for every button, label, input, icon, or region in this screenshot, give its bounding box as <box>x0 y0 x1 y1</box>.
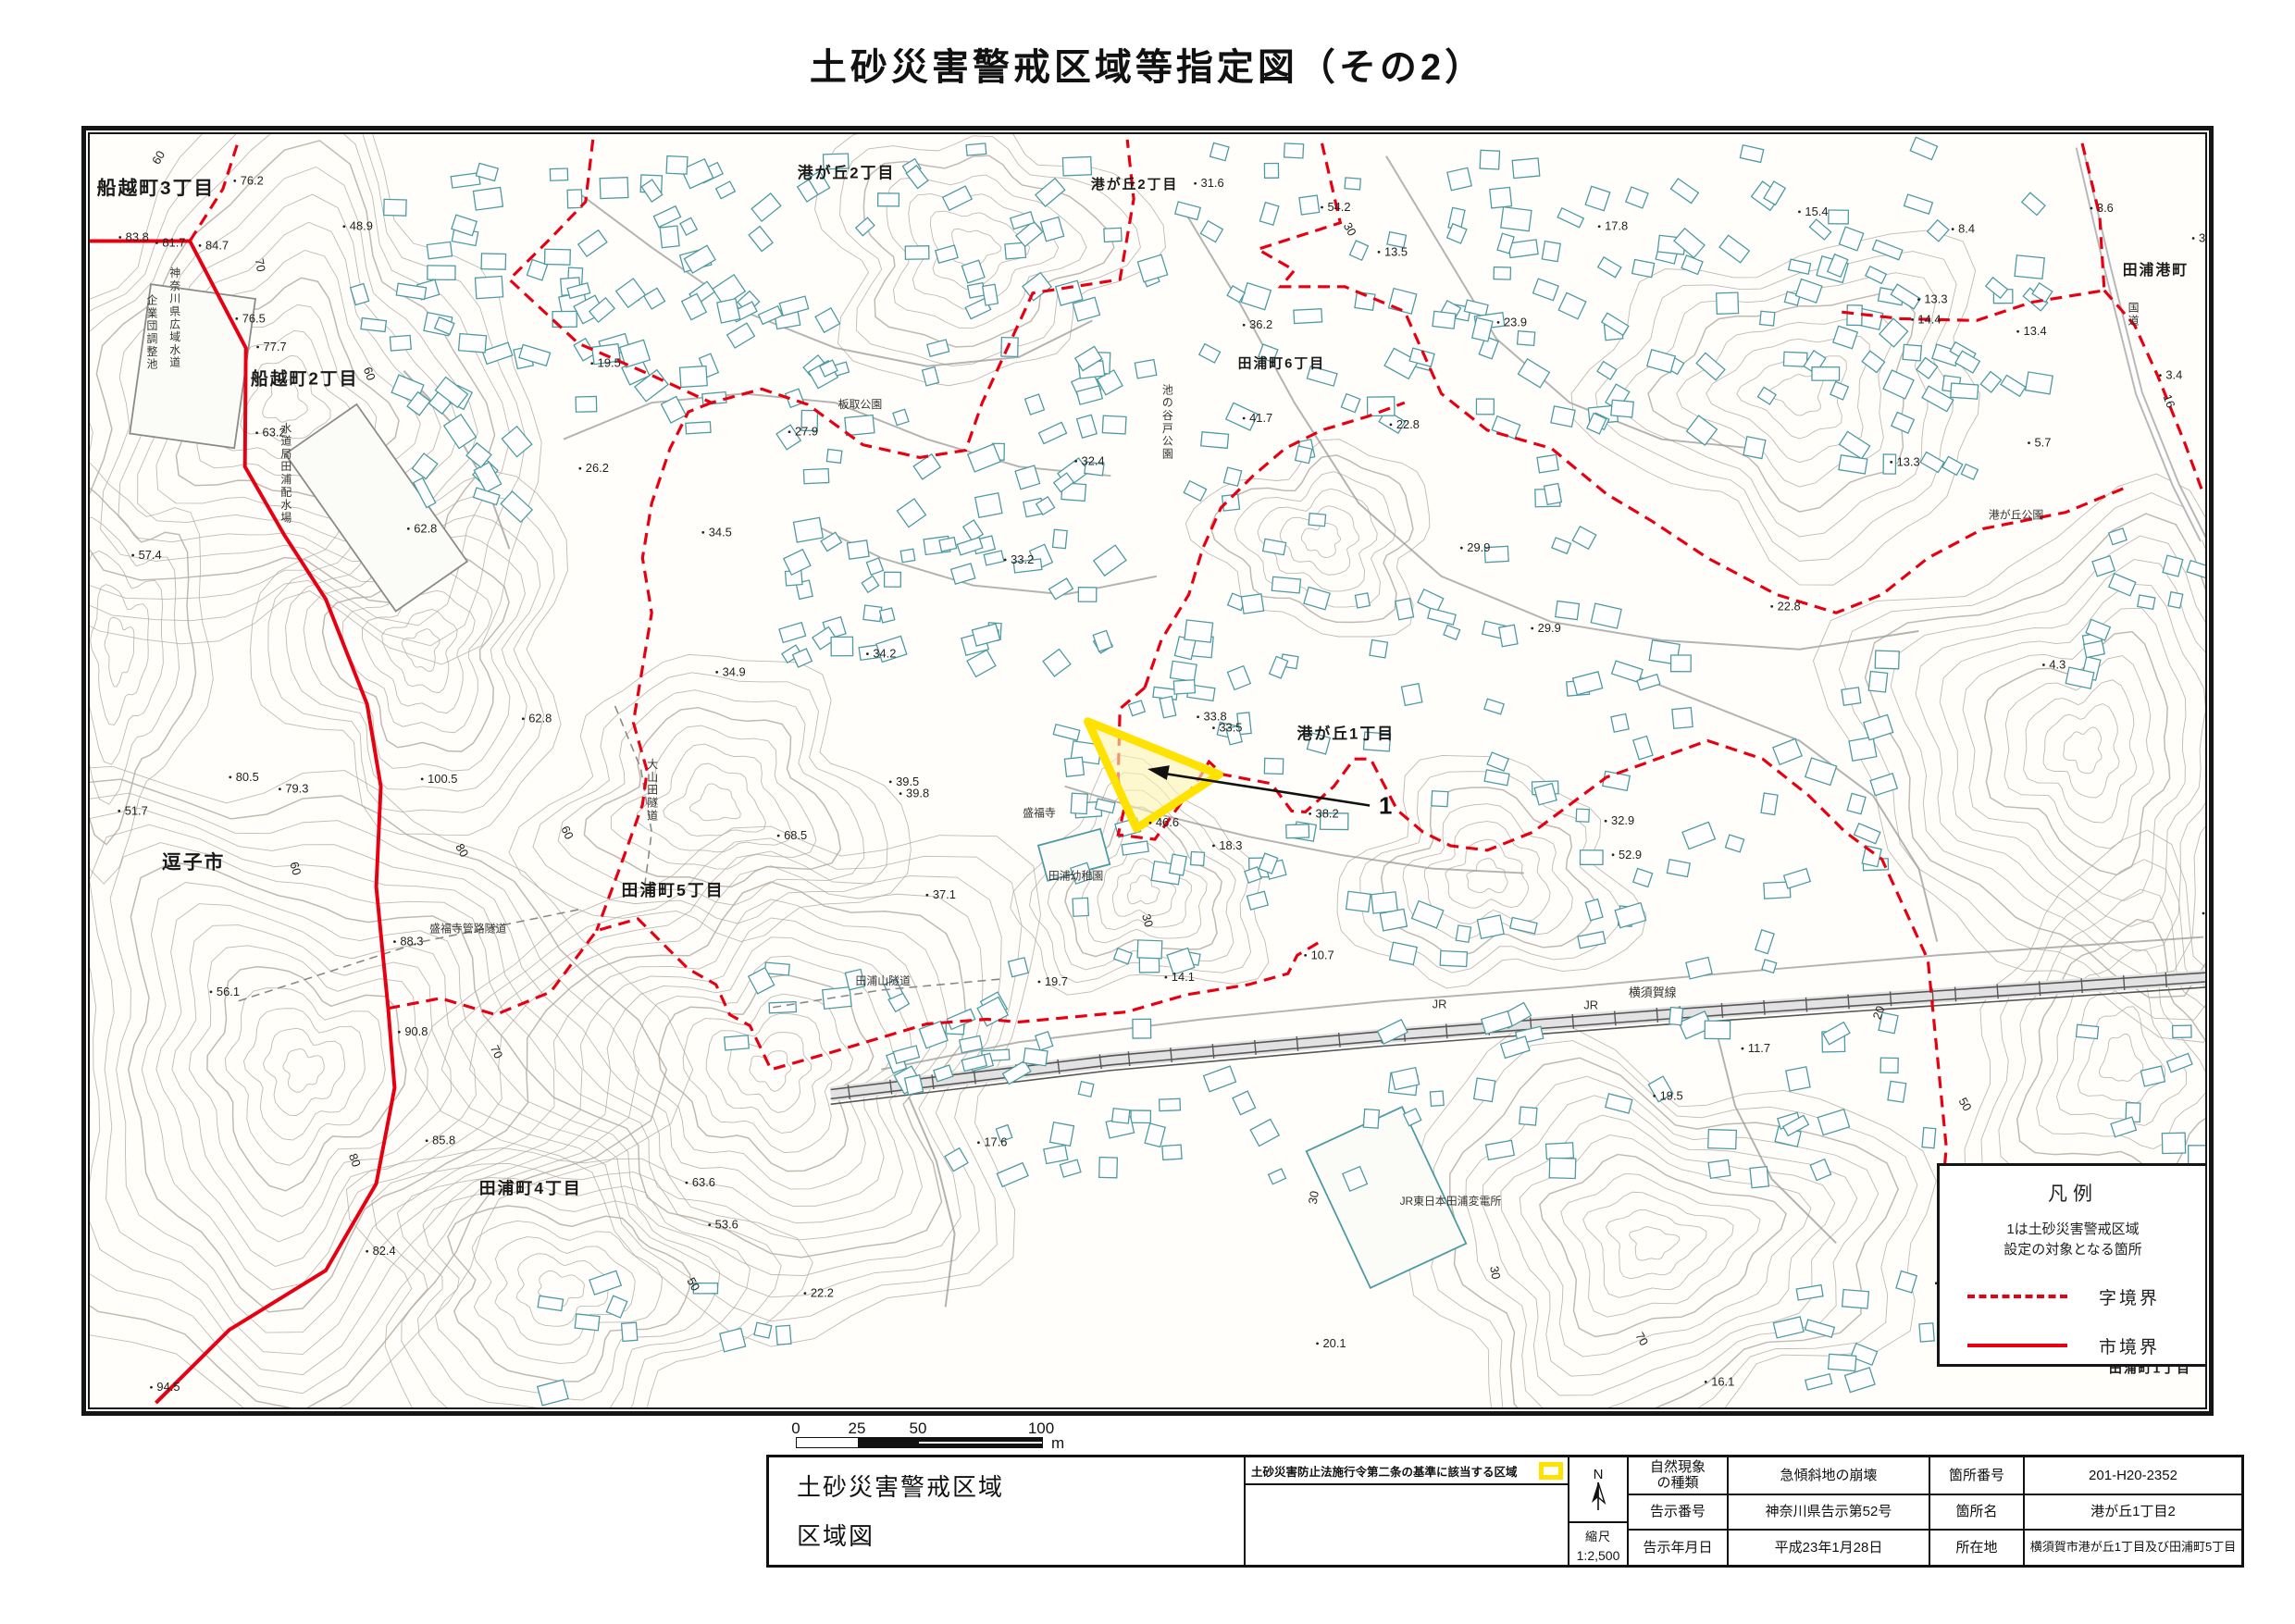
spot-elevation: 19.5 <box>1660 1088 1683 1102</box>
spot-elevation: 34.5 <box>709 525 732 539</box>
map-frame: 1船越町3丁目船越町2丁目港が丘2丁目港が丘2丁目田浦港町田浦町6丁目港が丘1丁… <box>81 126 2214 1416</box>
spot-elevation: 56.1 <box>217 985 240 998</box>
site-name-label: 箇所名 <box>1929 1494 2023 1530</box>
district-label: 田浦町4丁目 <box>479 1178 582 1197</box>
facility-label: 横須賀線 <box>1629 986 1677 999</box>
notice-date-label: 告示年月日 <box>1629 1529 1727 1565</box>
legend-shi-label: 市境界 <box>2099 1333 2160 1358</box>
facility-label: 池の谷戸公園 <box>1162 383 1173 460</box>
district-label: 田浦港町 <box>2123 261 2189 279</box>
spot-elevation: 33.2 <box>1011 552 1034 566</box>
facility-label: 田浦幼稚園 <box>1048 869 1103 882</box>
legend-note: 1は土砂災害警戒区域 設定の対象となる箇所 <box>1958 1220 2188 1260</box>
spot-elevation: 34.9 <box>723 664 746 678</box>
spot-elevation: 19.7 <box>1045 974 1068 988</box>
spot-elevation: 68.5 <box>784 828 807 842</box>
spot-elevation: 39.8 <box>906 787 929 800</box>
svg-text:N: N <box>1594 1467 1604 1482</box>
spot-elevation: 23.9 <box>1504 315 1527 329</box>
spot-elevation: 83.8 <box>126 230 149 244</box>
spot-elevation: 38.2 <box>1316 806 1339 820</box>
attributes-grid: 自然現象 の種類 急傾斜地の崩壊 箇所番号 201-H20-2352 告示番号 … <box>1629 1457 2241 1565</box>
district-label: 港が丘2丁目 <box>1091 176 1179 192</box>
district-label: 船越町2丁目 <box>251 368 359 389</box>
spot-elevation: 10.7 <box>1311 948 1334 961</box>
facility-label: JR <box>1583 998 1598 1012</box>
facility-label: JR東日本田浦変電所 <box>1400 1195 1502 1208</box>
spot-elevation: 29.9 <box>1467 540 1490 554</box>
spot-elevation: 80.5 <box>236 770 259 784</box>
north-arrow: N <box>1569 1457 1627 1521</box>
spot-elevation: 63.6 <box>692 1175 715 1189</box>
spot-elevation: 90.8 <box>404 1024 428 1038</box>
spot-elevation: 36.2 <box>1249 317 1272 331</box>
spot-elevation: 29.9 <box>1538 621 1561 635</box>
scale-tick: 25 <box>849 1419 866 1438</box>
district-label: 港が丘1丁目 <box>1297 724 1396 742</box>
spot-elevation: 13.3 <box>1924 292 1947 306</box>
page-title: 土砂災害警戒区域等指定図（その2） <box>0 37 2295 91</box>
spot-elevation: 60 <box>287 861 304 877</box>
spot-elevation: 13.5 <box>1384 244 1408 258</box>
spot-elevation: 94.5 <box>156 1380 180 1394</box>
scale-seg <box>919 1442 1042 1444</box>
buildings <box>351 137 2205 1406</box>
spot-elevation: 19.5 <box>598 356 621 370</box>
law-note-cell: 土砂災害防止法施行令第二条の基準に該当する区域 <box>1246 1457 1569 1565</box>
spot-elevation: 8.4 <box>1958 222 1975 236</box>
scale-tick: 50 <box>910 1419 927 1438</box>
facility-label: 神奈川県広域水道 <box>169 267 180 369</box>
spot-elevation: 46.6 <box>1156 815 1179 829</box>
spot-elevation: 34.2 <box>873 647 896 661</box>
facility-label: 国道 <box>2128 302 2140 328</box>
map-type-cell: 土砂災害警戒区域 区域図 <box>769 1457 1246 1565</box>
spot-elevation: 33.5 <box>1219 721 1242 735</box>
scale-unit: m <box>1051 1434 1064 1453</box>
district-label: 船越町3丁目 <box>97 177 216 199</box>
spot-elevation: 80 <box>346 1151 364 1169</box>
spot-elevation: 3.6 <box>2097 201 2114 215</box>
spot-elevation: 3.4 <box>2199 231 2205 245</box>
spot-elevation: 85.8 <box>432 1134 455 1147</box>
facility-label: JR <box>1433 998 1447 1011</box>
legend-aza-label: 字境界 <box>2099 1284 2160 1309</box>
map-legend: 凡例 1は土砂災害警戒区域 設定の対象となる箇所 字境界 市境界 <box>1937 1163 2207 1367</box>
scale-value: 1:2,500 <box>1569 1548 1627 1563</box>
spot-elevation: 88.3 <box>400 935 423 948</box>
spot-elevation: 84.7 <box>205 238 229 252</box>
scale-bar-graphic <box>796 1437 1043 1448</box>
spot-elevation: 41.7 <box>1249 411 1272 425</box>
spot-elevation: 48.9 <box>350 219 373 233</box>
hazard-map-sheet: 土砂災害警戒区域等指定図（その2） 1船越町3丁目船越町2丁目港が丘2丁目港が丘… <box>0 0 2295 1624</box>
scale-seg <box>797 1438 858 1447</box>
scale-ticks: 02550100 <box>785 1419 1081 1437</box>
spot-elevation: 70 <box>253 257 268 273</box>
spot-elevation: 32.4 <box>1082 453 1105 467</box>
facility-label: 企業団調整池 <box>147 294 158 371</box>
site-no-value: 201-H20-2352 <box>2023 1457 2241 1494</box>
facility-label: 板取公園 <box>838 398 883 411</box>
tunnel-lines <box>239 706 1001 1008</box>
legend-title: 凡例 <box>1958 1179 2188 1207</box>
spot-elevation: 26.2 <box>586 461 609 475</box>
designation-number: 1 <box>1379 793 1392 819</box>
location-value: 横須賀市港が丘1丁目及び田浦町5丁目 <box>2023 1529 2241 1565</box>
nature-value: 急傾斜地の崩壊 <box>1727 1457 1929 1494</box>
facility-label: 田浦山隧道 <box>856 974 912 987</box>
spot-elevation: 13.4 <box>2024 324 2047 338</box>
spot-elevation: 4.3 <box>2049 657 2065 671</box>
spot-elevation: 76.2 <box>241 173 264 187</box>
north-arrow-icon: N <box>1584 1466 1612 1514</box>
district-label: 田浦町6丁目 <box>1238 355 1326 372</box>
spot-elevation: 27.9 <box>795 425 818 439</box>
spot-elevation: 13.3 <box>1897 454 1920 468</box>
facility-label: 大山田隧道 <box>647 758 658 822</box>
spot-elevation: 60 <box>361 366 378 383</box>
map-type-line1: 土砂災害警戒区域 <box>797 1469 1244 1503</box>
legend-row-shi: 市境界 <box>1958 1333 2188 1358</box>
spot-elevation: 30 <box>1487 1265 1503 1281</box>
spot-elevation: 70 <box>488 1043 506 1060</box>
site-name-value: 港が丘1丁目2 <box>2023 1494 2241 1530</box>
spot-elevation: 77.7 <box>264 340 287 353</box>
spot-elevation: 16.1 <box>1711 1374 1734 1388</box>
spot-elevation: 51.7 <box>125 803 148 817</box>
spot-elevation: 11.7 <box>1748 1041 1770 1055</box>
spot-elevation: 50 <box>1955 1095 1974 1113</box>
spot-elevation: 37.1 <box>933 887 956 901</box>
spot-elevation: 17.8 <box>1605 219 1628 233</box>
legend-row-aza: 字境界 <box>1958 1284 2188 1309</box>
spot-elevation: 22.2 <box>811 1286 834 1300</box>
spot-elevation: 5.7 <box>2034 436 2051 450</box>
district-label: 港が丘2丁目 <box>798 163 896 181</box>
district-label: 逗子市 <box>162 851 225 874</box>
map-type-line2: 区域図 <box>797 1518 1244 1552</box>
spot-elevation: 30 <box>1341 220 1359 239</box>
aza-boundary <box>597 403 712 931</box>
spot-elevation: 62.8 <box>414 521 437 535</box>
spot-elevation: 30 <box>1139 912 1156 929</box>
spot-elevation: 100.5 <box>428 772 457 786</box>
map-canvas: 1船越町3丁目船越町2丁目港が丘2丁目港が丘2丁目田浦港町田浦町6丁目港が丘1丁… <box>88 132 2207 1409</box>
spot-elevation: 60 <box>558 824 577 841</box>
scale-tick: 0 <box>791 1419 800 1438</box>
location-label: 所在地 <box>1929 1529 2023 1565</box>
district-label: 田浦町5丁目 <box>622 880 725 899</box>
info-table: 土砂災害警戒区域 区域図 土砂災害防止法施行令第二条の基準に該当する区域 N 縮… <box>766 1455 2244 1568</box>
spot-elevation: 17.6 <box>984 1135 1007 1149</box>
spot-elevation: 18.3 <box>1219 838 1242 852</box>
spot-elevation: 62.8 <box>528 712 552 725</box>
notice-no-value: 神奈川県告示第52号 <box>1727 1494 1929 1530</box>
facility-label: 盛福寺管路隧道 <box>429 923 506 936</box>
facility-label: 港が丘公園 <box>1989 509 2043 522</box>
spot-elevation: 52.9 <box>1619 848 1642 862</box>
spot-elevation: 22.8 <box>1396 417 1420 431</box>
topographic-map: 1船越町3丁目船越町2丁目港が丘2丁目港が丘2丁目田浦港町田浦町6丁目港が丘1丁… <box>90 134 2205 1407</box>
law-note: 土砂災害防止法施行令第二条の基準に該当する区域 <box>1251 1462 1518 1480</box>
scale-label: 縮尺 <box>1569 1527 1627 1544</box>
notice-no-label: 告示番号 <box>1629 1494 1727 1530</box>
site-no-label: 箇所番号 <box>1929 1457 2023 1494</box>
facility-label: 盛福寺 <box>1023 806 1056 819</box>
north-scale-cell: N 縮尺 1:2,500 <box>1569 1457 1629 1565</box>
spot-elevation: 60 <box>149 148 167 167</box>
spot-elevation: 3.4 <box>2165 368 2182 382</box>
spot-elevation: 15.4 <box>1805 205 1828 218</box>
spot-elevation: 14.1 <box>1172 970 1195 984</box>
designated-area-swatch <box>1539 1462 1563 1480</box>
spot-elevation: 79.3 <box>285 782 308 796</box>
spot-elevation: 32.9 <box>1611 813 1634 827</box>
spot-elevation: 20.1 <box>1323 1336 1346 1350</box>
spot-elevation: 53.6 <box>715 1218 738 1232</box>
spot-elevation: 30 <box>1306 1190 1321 1206</box>
spot-elevation: 57.4 <box>139 548 162 562</box>
spot-elevation: 81.7 <box>162 235 185 249</box>
nature-label: 自然現象 の種類 <box>1629 1457 1727 1494</box>
scale-seg <box>858 1438 919 1447</box>
spot-elevation: 16 <box>2161 392 2178 410</box>
spot-elevation: 70 <box>1632 1330 1651 1348</box>
spot-elevation: 54.2 <box>1327 200 1350 214</box>
spot-elevation: 76.5 <box>242 311 266 325</box>
dashed-line-sample <box>1967 1295 2067 1298</box>
scale-tick: 100 <box>1028 1419 1054 1438</box>
spot-elevation: 82.4 <box>373 1244 396 1258</box>
notice-date-value: 平成23年1月28日 <box>1727 1529 1929 1565</box>
spot-elevation: 31.6 <box>1201 176 1224 190</box>
spot-elevation: 22.8 <box>1778 599 1801 613</box>
spot-elevation: 63.2 <box>263 426 286 440</box>
solid-line-sample <box>1967 1344 2067 1347</box>
spot-elevation: 14.4 <box>1917 312 1941 326</box>
